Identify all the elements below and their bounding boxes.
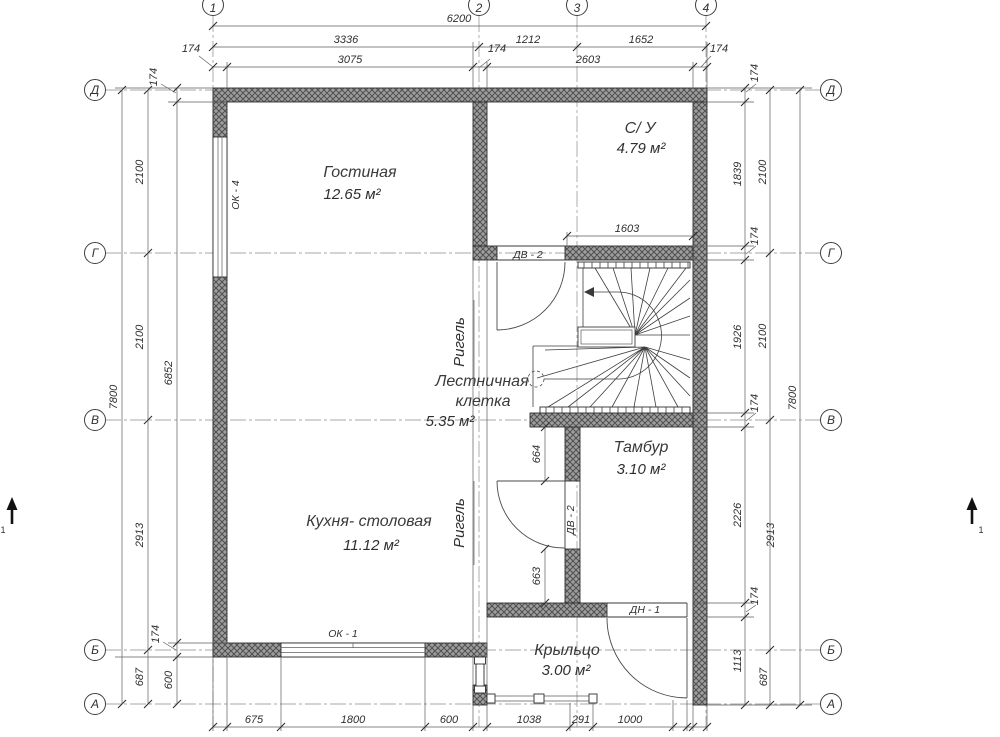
stair-lower-treads	[537, 347, 690, 407]
room-kitchen-name: Кухня- столовая	[306, 513, 432, 530]
beam-edge-lines	[473, 260, 487, 685]
dim-wall-thk-right-3: 174	[749, 394, 761, 412]
dim-span-b-a-left: 687	[134, 667, 146, 686]
section-arrow-right-head	[967, 497, 978, 510]
axis-label-2: 2	[475, 1, 483, 15]
stair-bottom-strip	[540, 407, 690, 413]
wall-tambour-left-lower	[565, 549, 580, 603]
window-ok4-label: ОК - 4	[230, 180, 242, 210]
axis-label-B-right: Б	[827, 643, 835, 657]
dim-total-width: 6200	[447, 13, 472, 25]
floor-plan-drawing: 6200 3336 1212 1652 3075 2603 174 174 17…	[0, 0, 1000, 737]
door-dn1-swing	[607, 618, 687, 698]
dim-bottom-5: 291	[571, 714, 590, 726]
walkline-arrow	[584, 287, 594, 297]
stair-top-strip	[578, 262, 690, 268]
dim-inner-width-1: 3075	[338, 54, 363, 66]
porch-railing-post-3	[589, 694, 597, 703]
dim-bottom-1: 675	[245, 714, 264, 726]
dim-wall-thk-top-left: 174	[182, 43, 200, 55]
room-stairwell-name-2: клетка	[455, 393, 510, 410]
dim-wall-thk-left-bottom: 174	[150, 625, 162, 643]
room-wc-area: 4.79 м²	[617, 140, 667, 157]
door-dn1-label: ДН - 1	[629, 604, 660, 616]
dim-tambour-bottom: 663	[531, 566, 543, 585]
floor-plan-canvas: 6200 3336 1212 1652 3075 2603 174 174 17…	[0, 0, 1000, 737]
axis-grid-lines	[105, 16, 820, 727]
room-wc-name: С/ У	[625, 120, 657, 137]
axis-label-A-right: А	[826, 697, 835, 711]
wall-partition-living-wc	[473, 102, 487, 246]
beam-lines	[473, 260, 487, 685]
dim-wall-thk-right-1: 174	[749, 64, 761, 82]
axis-label-3: 3	[574, 1, 581, 15]
room-porch-area: 3.00 м²	[542, 662, 592, 679]
dim-total-height-left: 7800	[108, 384, 120, 409]
stair-lower-run-edge	[533, 346, 578, 407]
window-ok1-label: ОК - 1	[328, 628, 358, 640]
door-dv2-wc-swing	[497, 262, 565, 330]
beam-label-1: Ригель	[451, 317, 468, 367]
wall-top	[213, 88, 707, 102]
dim-span-d-g-right: 2100	[757, 159, 769, 185]
dim-right-tambour-height: 2226	[732, 502, 744, 528]
dim-span-3-4: 1652	[629, 34, 653, 46]
dim-span-v-b-right: 2913	[765, 522, 777, 548]
room-kitchen-area: 11.12 м²	[343, 537, 400, 554]
dim-wall-thk-right-2: 174	[749, 227, 761, 245]
room-living-area: 12.65 м²	[324, 186, 382, 203]
staircase	[528, 262, 690, 413]
wall-axisG-stub	[473, 246, 497, 260]
section-label-left: 1	[0, 525, 5, 535]
room-stairwell-area: 5.35 м²	[426, 413, 476, 430]
dim-span-g-v-left: 2100	[134, 324, 146, 350]
dim-bottom-6: 1000	[618, 714, 643, 726]
dim-wall-thk-top-mid: 174	[488, 43, 506, 55]
dim-right-stair-height: 1926	[732, 324, 744, 349]
dim-inner-width-2: 2603	[575, 54, 601, 66]
dim-right-wc-height: 1839	[732, 162, 744, 186]
axis-label-V-left: В	[91, 413, 99, 427]
door-dv2-wc-label: ДВ - 2	[512, 249, 543, 261]
dim-right-porch-height: 1113	[732, 649, 744, 673]
dim-bottom-3: 600	[440, 714, 459, 726]
axis-label-4: 4	[703, 1, 710, 15]
wall-axisG-right	[565, 246, 693, 260]
dim-plinth: 600	[163, 670, 175, 689]
walkline-start-circle	[528, 371, 544, 387]
dim-wc-width: 1603	[615, 223, 640, 235]
axis-label-B-left: Б	[91, 643, 99, 657]
room-living-name: Гостиная	[323, 164, 397, 181]
dim-tambour-top: 664	[531, 445, 543, 463]
beam-label-2: Ригель	[451, 498, 468, 548]
axis-label-A-left: А	[90, 697, 99, 711]
axis-label-D-right: Д	[825, 83, 836, 97]
wall-right	[693, 102, 707, 705]
section-label-right: 1	[978, 525, 983, 535]
door-dv2-kitchen-label: ДВ - 2	[565, 505, 577, 536]
door-dv2-kitchen-swing	[497, 481, 565, 548]
dim-bottom-2: 1800	[341, 714, 366, 726]
dim-wall-thk-top-right: 174	[710, 43, 728, 55]
axis-label-1: 1	[210, 1, 217, 15]
dim-span-1-2: 3336	[334, 34, 359, 46]
dim-span-d-g-left: 2100	[134, 159, 146, 185]
dim-wall-thk-right-4: 174	[749, 587, 761, 605]
wall-tambour-left-upper	[565, 427, 580, 481]
room-tambour-area: 3.10 м²	[617, 461, 667, 478]
window-ok4	[213, 137, 227, 277]
porch-left-railing-post-bottom	[475, 686, 486, 693]
windows	[213, 137, 425, 657]
porch-railing-post-2	[534, 694, 544, 703]
axis-label-D-left: Д	[89, 83, 100, 97]
room-tambour-name: Тамбур	[614, 439, 669, 456]
dim-span-v-b-left: 2913	[134, 522, 146, 548]
room-porch-name: Крыльцо	[534, 642, 600, 659]
dim-span-g-v-right: 2100	[757, 323, 769, 349]
dim-span-b-a-right: 687	[758, 667, 770, 686]
dim-total-height-right: 7800	[787, 385, 799, 410]
dim-bottom-4: 1038	[517, 714, 542, 726]
porch-railing-post-1	[487, 694, 495, 703]
dim-span-2-3: 1212	[516, 34, 540, 46]
stair-upper-treads	[595, 268, 690, 335]
dim-inner-height: 6852	[163, 361, 175, 385]
porch-left-railing-post-top	[475, 657, 486, 664]
wall-axisV	[530, 413, 693, 427]
wall-porch-top	[487, 603, 607, 617]
axis-label-V-right: В	[827, 413, 835, 427]
room-stairwell-name-1: Лестничная	[434, 373, 529, 390]
section-arrow-left-head	[7, 497, 18, 510]
dim-wall-thk-left-top: 174	[148, 68, 160, 86]
